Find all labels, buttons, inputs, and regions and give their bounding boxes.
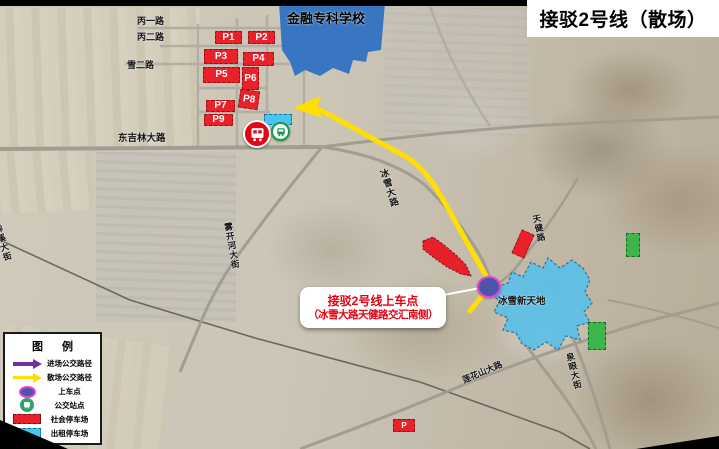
- road-label-dongjilin: 东吉林大路: [118, 130, 166, 144]
- boarding-point-icon: [10, 386, 44, 398]
- parking-lot-label: P4: [252, 54, 264, 64]
- parking-lot-p3: P3: [204, 49, 238, 64]
- bus-icon: [276, 127, 286, 137]
- frame-top-strip: [0, 0, 527, 6]
- public-parking-swatch: [10, 414, 44, 424]
- parking-lot-p2: P2: [248, 31, 275, 44]
- parking-lot-p9: P9: [204, 114, 233, 126]
- map-title-text: 接驳2号线（散场）: [539, 5, 706, 32]
- road-label-binger: 丙二路: [137, 30, 164, 43]
- enter-route-arrow-icon: [10, 359, 44, 369]
- legend-label: 进场公交路径: [44, 358, 95, 369]
- parking-lot-label: P7: [214, 101, 226, 111]
- parking-lot-label: P3: [215, 52, 227, 62]
- venue-label: 冰雪新天地: [498, 293, 546, 307]
- legend-title: 图 例: [10, 338, 95, 354]
- parking-lot-label: P2: [255, 33, 267, 43]
- parking-lot-p8: P8: [238, 89, 260, 111]
- parking-lot-label: P5: [215, 70, 227, 80]
- parking-lot-p4: P4: [243, 52, 274, 66]
- major-roads: [0, 117, 719, 449]
- map-title: 接驳2号线（散场）: [527, 0, 719, 37]
- parking-lot-label: P: [401, 422, 406, 430]
- legend-row-enter-route: 进场公交路径: [10, 357, 95, 371]
- legend-label: 社会停车场: [44, 414, 95, 425]
- legend-row-bus-stop: 公交站点: [10, 398, 95, 412]
- legend-label: 公交站点: [44, 400, 95, 411]
- parking-lot-label: P9: [212, 115, 224, 125]
- shuttle-line2-exit-map: P1 P2 P3 P4 P5 P6 P7 P8 P9 P 金融专科学校 冰雪新天…: [0, 0, 719, 449]
- parking-lot-label: P6: [244, 74, 256, 84]
- legend-row-boarding-point: 上车点: [10, 385, 95, 399]
- school-label: 金融专科学校: [287, 8, 365, 27]
- bus-terminal-icon: [243, 120, 271, 148]
- boarding-point-callout: 接驳2号线上车点 （冰雪大路天健路交汇南侧）: [300, 287, 446, 328]
- map-vector-layer: [0, 0, 719, 449]
- roadside-parking-area: [423, 237, 471, 276]
- parking-lot-label: P8: [242, 94, 256, 106]
- parking-lot-p6: P6: [242, 67, 259, 90]
- bus-icon: [249, 126, 266, 143]
- parking-lot-label: P1: [222, 33, 234, 43]
- legend-label: 出租停车场: [44, 428, 95, 439]
- legend-label: 散场公交路径: [44, 372, 95, 383]
- parking-lot-p5: P5: [203, 67, 240, 83]
- legend-row-public-parking: 社会停车场: [10, 412, 95, 426]
- road-label-bingyi: 丙一路: [137, 14, 164, 27]
- bus-stop-icon: [271, 122, 290, 141]
- taxi-parking-green-1: [626, 233, 640, 257]
- callout-line1: 接驳2号线上车点: [328, 294, 419, 309]
- parking-lot-p7: P7: [206, 100, 235, 112]
- bus-stop-legend-icon: [10, 398, 44, 412]
- taxi-parking-green-2: [588, 322, 606, 350]
- callout-line2: （冰雪大路天健路交汇南侧）: [308, 309, 438, 322]
- exit-route-arrow-icon: [10, 373, 44, 383]
- road-label-xueer: 雪二路: [127, 58, 154, 71]
- parking-lot-p1: P1: [215, 31, 242, 44]
- legend-label: 上车点: [44, 386, 95, 397]
- legend-row-exit-route: 散场公交路径: [10, 371, 95, 385]
- parking-lot-extra: P: [393, 419, 415, 432]
